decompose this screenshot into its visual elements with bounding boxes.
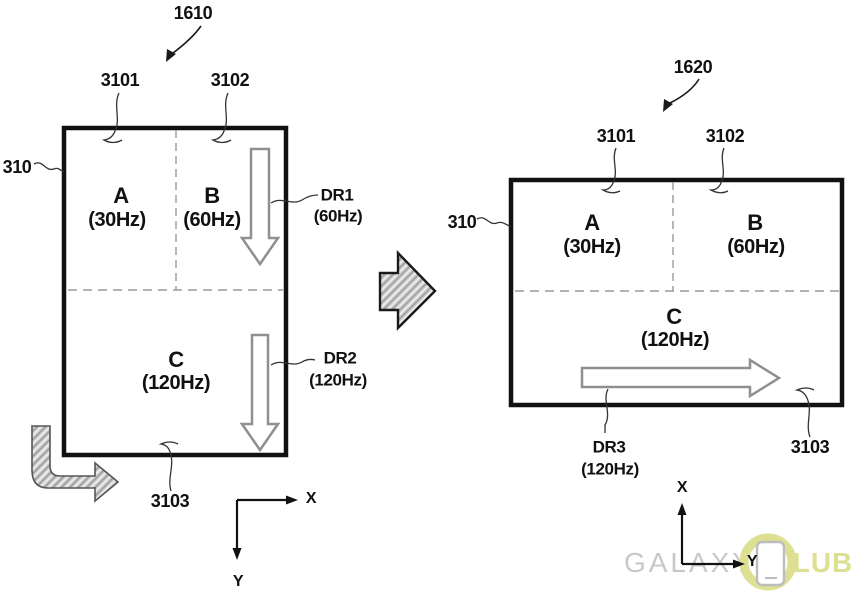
dr1-rate-label: (60Hz) [314, 208, 363, 225]
ref-3102-left: 3102 [211, 71, 249, 89]
ref-310-right: 310 [448, 213, 477, 231]
ref-3101-left: 3101 [101, 71, 139, 89]
fig-1620-pointer-arrow-icon [663, 79, 699, 112]
region-b-label-left: B [204, 185, 220, 207]
left-axes-icon [233, 496, 299, 561]
leader-310-left [34, 163, 64, 172]
x-axis-label-right: X [677, 480, 687, 496]
ref-3103-right: 3103 [791, 438, 829, 456]
region-a-rate-right: (30Hz) [563, 237, 621, 257]
dr1-label: DR1 [321, 187, 354, 204]
x-axis-label-left: X [306, 491, 316, 507]
region-a-label-left: A [113, 185, 129, 207]
phone-icon [757, 542, 784, 585]
ref-310-left: 310 [3, 158, 32, 176]
fig-label-1610: 1610 [174, 4, 212, 22]
dr3-label: DR3 [593, 439, 626, 456]
dr2-rate-label: (120Hz) [309, 372, 367, 389]
ref-3101-right: 3101 [597, 127, 635, 145]
transition-arrow-icon [380, 253, 435, 328]
region-c-label-right: C [666, 306, 682, 328]
region-b-rate-left: (60Hz) [183, 210, 241, 230]
region-b-rate-right: (60Hz) [727, 237, 785, 257]
dr3-rate-label: (120Hz) [581, 461, 639, 478]
region-a-rate-left: (30Hz) [88, 210, 146, 230]
region-b-label-right: B [747, 212, 763, 234]
region-c-label-left: C [168, 349, 184, 371]
region-a-label-right: A [584, 212, 600, 234]
y-axis-label-left: Y [233, 574, 243, 590]
region-c-rate-right: (120Hz) [641, 330, 709, 350]
fig-label-1620: 1620 [674, 58, 712, 76]
y-axis-label-right: Y [747, 554, 757, 570]
dr2-label: DR2 [324, 350, 357, 367]
watermark-text-accent: LUB [793, 547, 852, 578]
leader-310-right [477, 218, 511, 227]
ref-3102-right: 3102 [706, 127, 744, 145]
patent-figure: GALAXY LUB 1610 3101 3102 310 A (30Hz) B… [0, 0, 852, 598]
region-c-rate-left: (120Hz) [142, 373, 210, 393]
ref-3103-left: 3103 [151, 492, 189, 510]
fig-1610-pointer-arrow-icon [166, 26, 201, 62]
